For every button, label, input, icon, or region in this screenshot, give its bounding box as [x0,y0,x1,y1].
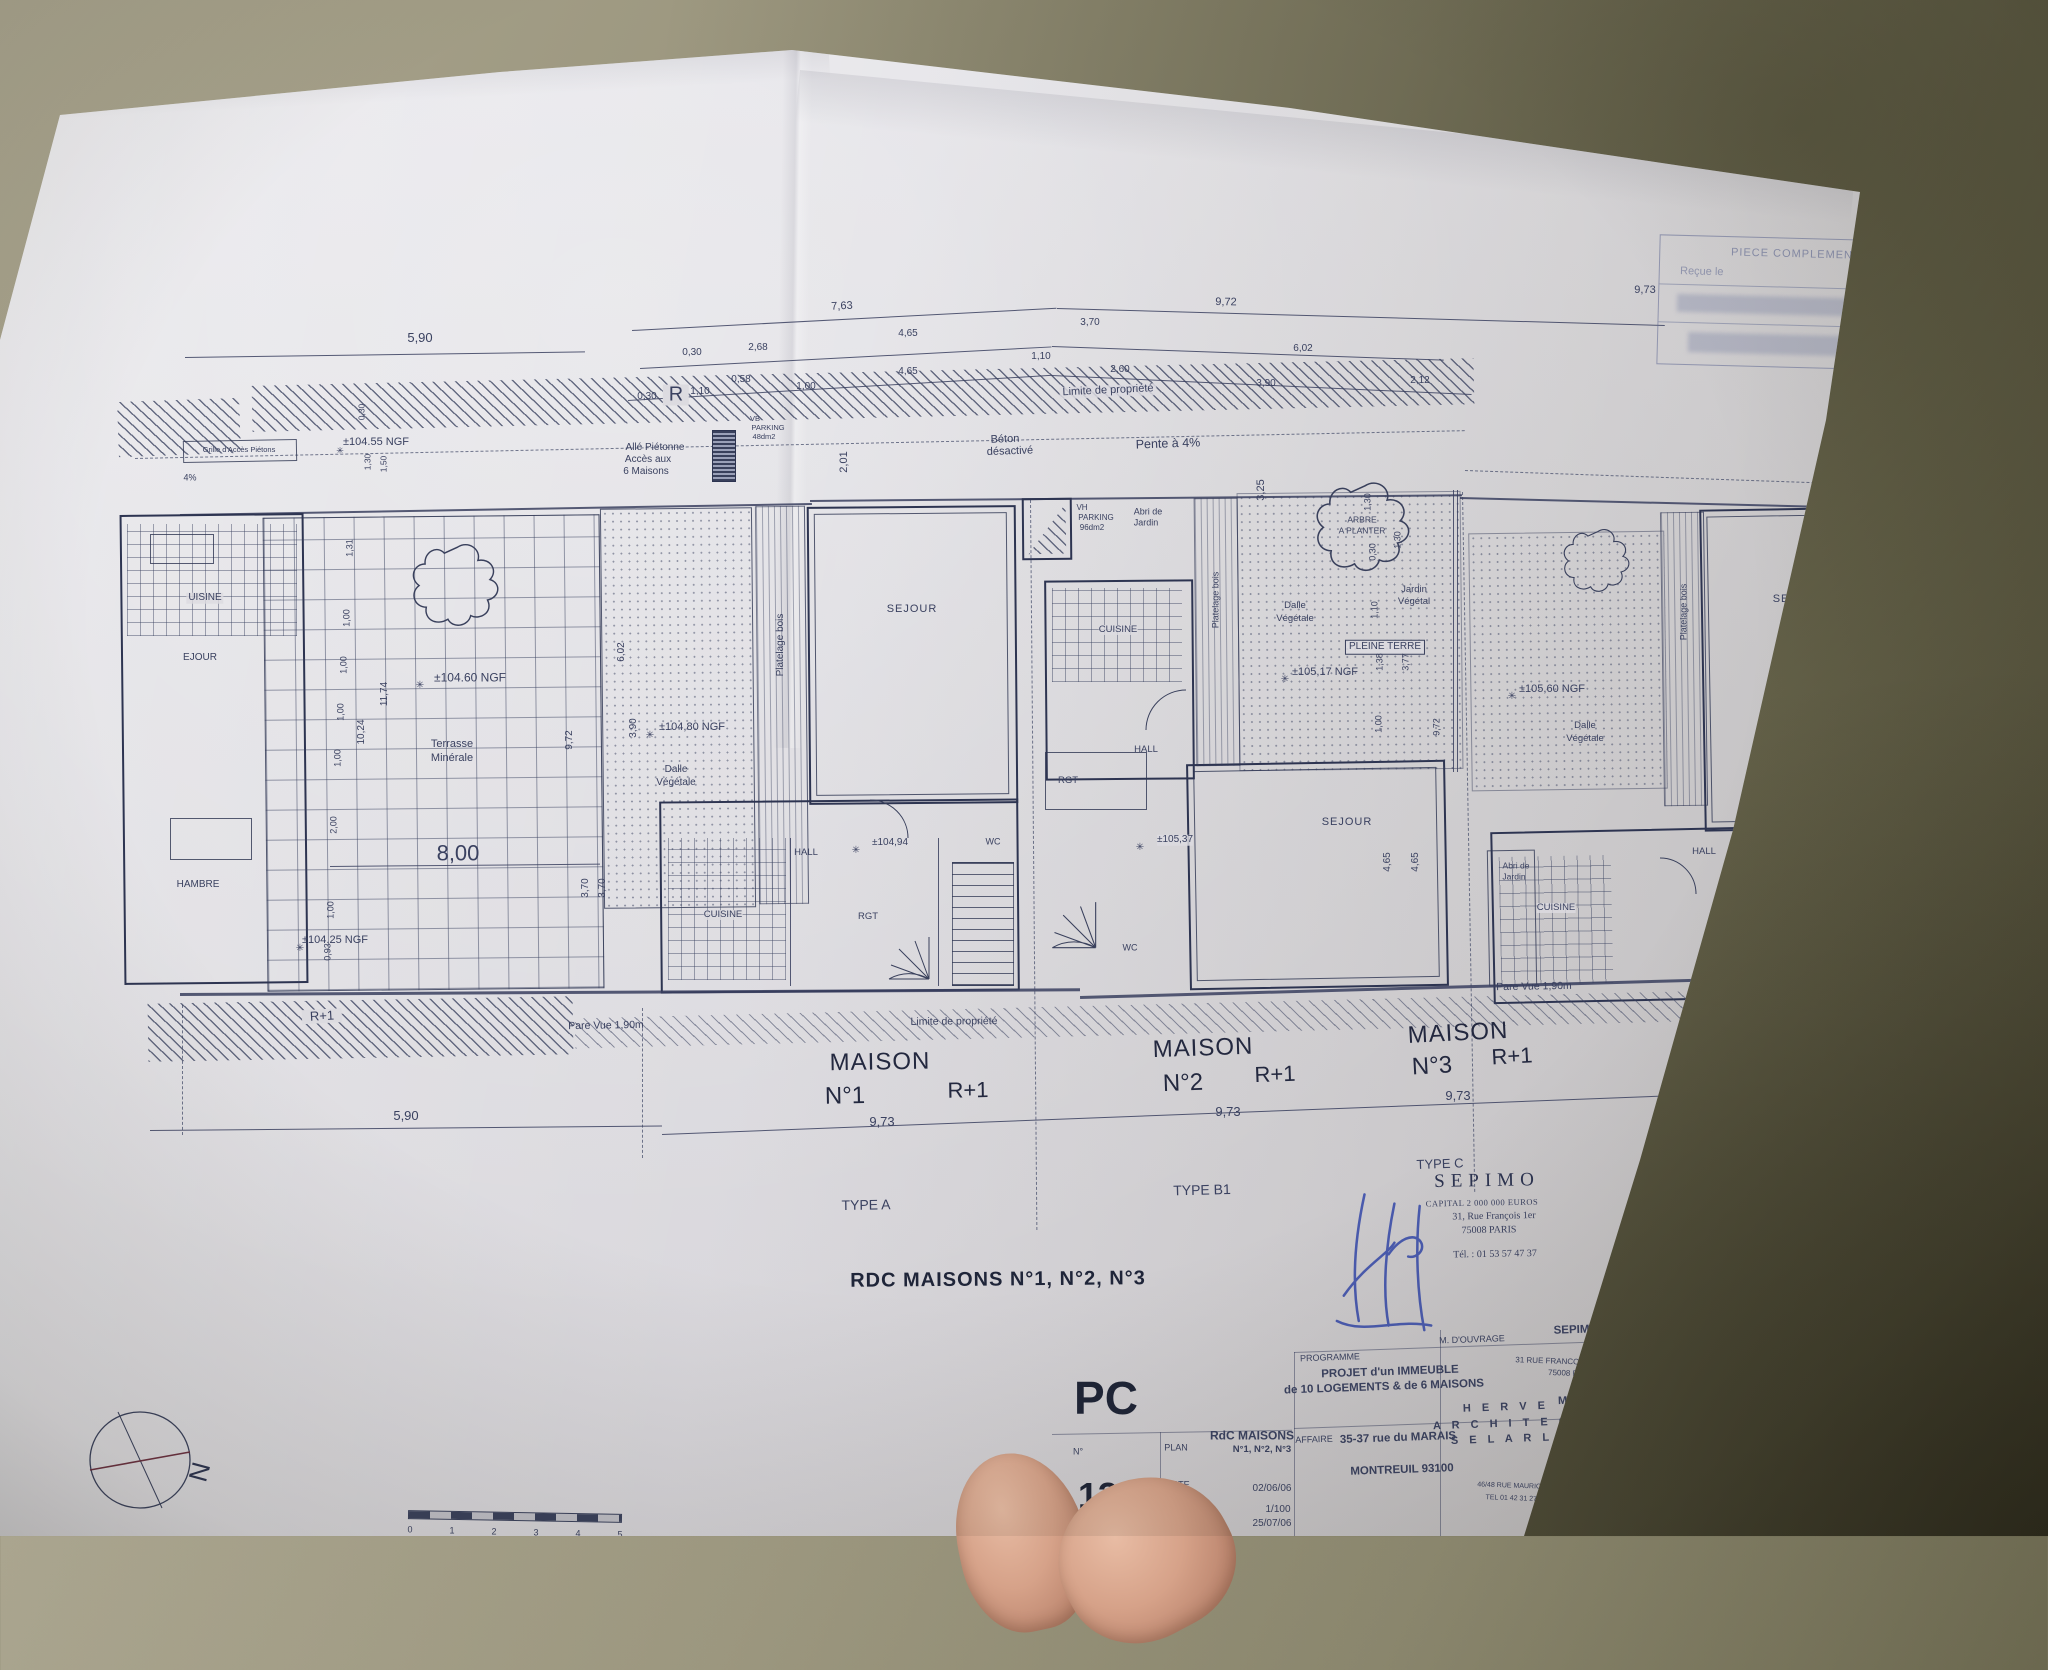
parking-label: PARKING [751,424,784,432]
left-house-door [170,818,252,860]
grille-label: Grille d'Accès Piétons [203,446,276,454]
pare-vue-label: Pare Vue 1,90m [568,1020,644,1032]
stamp-recu-label: Reçue le [1680,266,1724,279]
wall-line [938,838,939,986]
abri-jardin-label: Abri de [1134,507,1163,516]
room-label: HALL [794,848,818,858]
programme-value: de 10 LOGEMENTS & de 6 MAISONS [1284,1377,1484,1396]
dalle-label: Dalle [1574,721,1596,731]
ngf-marker-icon: ✳ [1281,675,1289,686]
room-label: SEJOUR [1322,817,1373,829]
dim-label: 0,30 [358,404,367,421]
maison-number: N°3 [1411,1052,1453,1079]
dim-label: 11,74 [380,682,391,706]
dim-label: 1,50 [380,456,389,473]
dim-label: 4,65 [898,329,917,340]
dim-label: 3,77 [1401,653,1410,671]
maison-label: MAISON [829,1049,930,1076]
platelage-label: Platelage bois [1211,572,1220,629]
dim-label: 7,63 [831,301,853,314]
affaire-value: MONTREUIL 93100 [1350,1462,1454,1478]
door-arc [1660,858,1696,894]
dim-label: 3,70 [1080,318,1099,329]
maison2-sejour-inner [1193,767,1440,981]
dim-line [1057,308,1665,326]
dim-label: 5,90 [393,1109,418,1123]
ngf-marker-icon: ✳ [1508,692,1516,703]
dim-label: 0,93 [323,943,332,961]
jardin-label: Végétal [1398,597,1430,607]
scale-tick: 2 [491,1527,496,1536]
architect-structure: S E L A R L [1451,1432,1554,1447]
bottom-hatch-band [148,996,574,1061]
maison-label: MAISON [1152,1034,1254,1063]
dim-label: 9,73 [1634,285,1655,297]
ngf-label: ±104,94 [872,838,908,849]
arbre-label: A PLANTER [1339,527,1386,536]
spiral-stair [1048,900,1100,952]
ngf-label: ±105,60 NGF [1519,684,1585,696]
beton-label: désactivé [987,445,1034,458]
dim-label: 3,90 [629,718,640,737]
room-label: RGT [858,912,878,922]
dim-label: 9,73 [869,1115,894,1129]
dalle-label: Végétale [1276,614,1314,624]
dim-label: 10,24 [357,719,368,744]
room-label: CUISINE [1537,903,1576,913]
dim-label: 0,30 [682,348,701,359]
slope-label: 4% [183,473,196,482]
scale-tick: 5 [617,1530,622,1539]
dim-line [1052,346,1444,361]
pare-vue-label: Pare Vue 1,90m [1496,981,1572,993]
ngf-marker-icon: ✳ [852,846,860,857]
dim-label: 9,73 [1445,1089,1470,1103]
dalle-label: Dalle [665,765,688,776]
echelle-value: 1/100 [1265,1505,1290,1516]
terrasse-label: Minérale [431,753,473,765]
ngf-label: ±104.25 NGF [302,935,368,947]
room-label: RGT [1058,776,1078,786]
room-label: CUISINE [704,910,743,920]
dim-label: 2,01 [839,451,851,472]
door-arc [870,800,908,838]
sheet-title: RDC MAISONS N°1, N°2, N°3 [850,1268,1146,1292]
dim-label: 3,70 [581,878,592,897]
dim-label: 1,10 [1031,352,1050,363]
type-label: TYPE A [841,1197,890,1213]
affaire-label: AFFAIRE [1295,1435,1333,1446]
terrasse-label: Terrasse [431,739,473,751]
dim-label: 3,70 [598,878,609,897]
allee-label: Accès aux [625,455,671,466]
plan-value: RdC MAISONS [1210,1430,1294,1443]
abri-jardin-label: Jardin [1134,518,1159,527]
room-label: UISINE [186,593,223,604]
dim-label: 5,90 [407,331,432,345]
street-axis-line [135,430,1465,459]
dim-label: 4,65 [1383,852,1394,871]
dim-label: 1,30 [1393,531,1402,549]
scale-tick: 4 [575,1529,580,1538]
dim-label: 1,00 [1374,715,1383,733]
affaire-value: 35-37 rue du MARAIS [1340,1430,1457,1446]
architect-name: H E R V E [1463,1401,1549,1416]
scale-tick: 1 [449,1526,454,1535]
maison-number: N°1 [825,1083,866,1109]
ngf-label: ±105,37 [1157,835,1193,846]
dim-label: 1,30 [1363,493,1372,511]
scale-tick: 0 [407,1525,412,1534]
dim-label: 4,65 [1411,852,1422,871]
numero-label: N° [1073,1447,1083,1456]
room-label: HALL [1692,847,1716,857]
platelage-label: Platelage bois [776,614,787,677]
scale-bar [408,1510,622,1523]
dalle-label: Végétale [1566,734,1604,744]
ngf-label: ±104.60 NGF [434,672,506,685]
vh-parking-label: VH [1076,504,1087,512]
ngf-label: ±104,80 NGF [659,722,725,734]
maison1-sejour-inner [814,512,1009,796]
ngf-marker-icon: ✳ [1136,843,1144,854]
allee-label: 6 Maisons [623,467,669,478]
type-label: TYPE C [1416,1156,1463,1171]
wall-line [790,838,791,986]
limite-propriete-label: Limite de propriété [910,1016,997,1028]
date2-value: 25/07/06 [1253,1519,1292,1530]
ngf-marker-icon: ✳ [296,944,304,955]
north-compass [88,1408,192,1512]
arbre-label: ARBRE [1347,516,1376,525]
parking-label: 48dm2 [753,433,776,441]
room-label: WC [1123,943,1138,952]
parking-label: VB [750,415,760,423]
parking-cell [712,430,736,482]
ngf-marker-icon: ✳ [646,731,654,742]
scale-tick: 3 [533,1528,538,1537]
maison-floors: R+1 [1254,1062,1296,1087]
pleine-terre-label: PLEINE TERRE [1345,640,1425,655]
ngf-marker-icon: ✳ [336,446,344,455]
dim-label: 1,31 [345,539,354,557]
dim-label: 1,38 [1375,653,1384,671]
stairs [952,862,1014,986]
dim-line [150,1126,662,1131]
maison-floors: R+1 [947,1078,988,1102]
dim-line [185,351,585,358]
rplus1-band-label: R+1 [302,1008,343,1024]
ngf-label: ±105,17 NGF [1292,667,1358,679]
platelage-bois-strip [1194,498,1241,766]
room-label: SEJOUR [887,604,938,616]
maison-floors: R+1 [1491,1043,1533,1068]
sink [150,534,214,564]
dim-label: 9,72 [1215,297,1237,309]
vh-parking-label: 96dm2 [1080,524,1104,532]
garden-boundary [1453,490,1454,772]
dim-label: 6,02 [617,642,628,661]
door-arc [1146,690,1186,730]
tree-outline [1548,526,1648,618]
dim-label: 2,68 [748,343,767,354]
ngf-label: ±104.55 NGF [343,437,409,449]
dim-label: 1,00 [333,749,342,767]
programme-value: PROJET d'un IMMEUBLE [1321,1364,1459,1381]
dalle-label: Dalle [1284,601,1306,611]
dim-label: 9,72 [565,730,576,749]
maison-number: N°2 [1162,1070,1203,1097]
pente-label: Pente à 4% [1135,436,1200,451]
plan-value: N°1, N°2, N°3 [1233,1445,1291,1455]
room-label: EJOUR [183,653,217,664]
sepimo-address: 31, Rue François 1er [1452,1211,1535,1223]
dim-label: 1,00 [342,609,351,627]
room-label: WC [986,837,1001,846]
dim-label: 9,73 [1215,1105,1240,1119]
road-label: R [663,385,689,406]
garden-boundary [1457,490,1458,772]
sepimo-name: SEPIMO [1434,1170,1540,1192]
type-label: TYPE B1 [1173,1182,1231,1198]
maison3-kitchen-tiles [1499,855,1614,985]
tree-outline [395,540,520,660]
dalle-label: Végétale [656,778,695,789]
sepimo-phone: Tél. : 01 53 57 47 37 [1453,1249,1537,1261]
allee-label: Allé Piétonne [626,443,685,454]
pc-label: PC [1074,1374,1138,1422]
dim-label: 1,00 [326,901,335,919]
dim-label: 1,00 [339,656,348,674]
dim-label: 9,72 [1432,718,1441,736]
dim-label: 1,30 [364,454,373,471]
dim-label-800: 8,00 [437,841,480,864]
dim-label: 1,10 [1370,601,1379,619]
signature [1330,1185,1445,1335]
dim-label: 1,00 [336,703,345,721]
room-label: CUISINE [1099,625,1138,635]
road-hatch-band [252,358,1475,432]
dim-label: 2,00 [329,816,338,834]
dim-label: 6,02 [1293,344,1312,355]
jardin-label: Jardin [1401,585,1427,595]
dim-label: 0,30 [1368,543,1377,561]
programme-label: PROGRAMME [1300,1352,1360,1364]
sepimo-address: 75008 PARIS [1461,1225,1516,1236]
vh-parking-hatch [1028,504,1067,555]
vh-parking-label: PARKING [1078,514,1113,522]
spiral-stair [885,935,933,983]
ngf-marker-icon: ✳ [416,681,424,692]
platelage-label: Platelage bois [1679,584,1688,641]
room-label: HAMBRE [177,880,220,891]
plan-label: PLAN [1164,1443,1188,1452]
date-value: 02/06/06 [1253,1484,1292,1495]
